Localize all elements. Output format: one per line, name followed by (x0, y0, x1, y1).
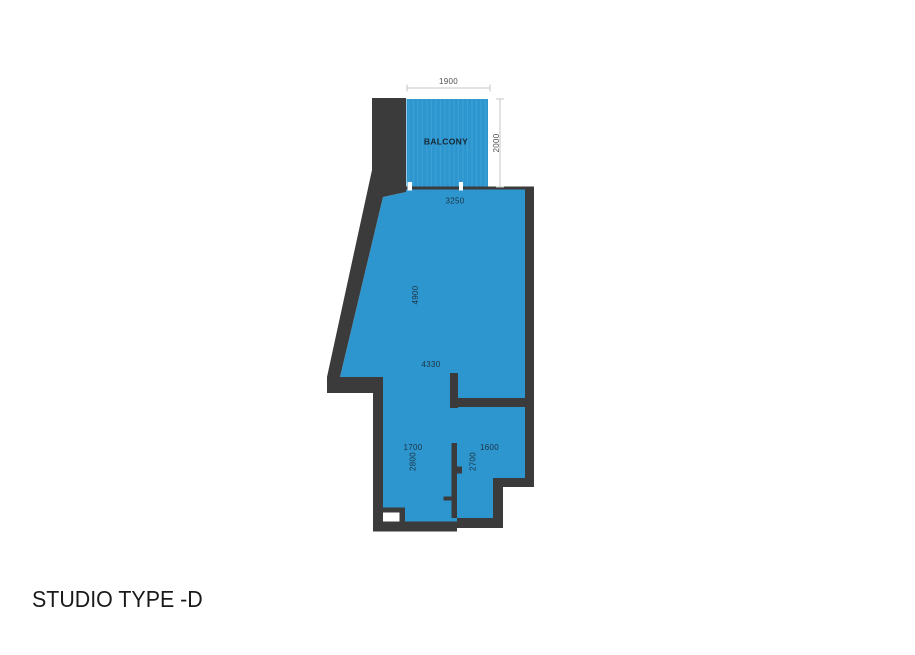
door-tick-right (459, 182, 463, 191)
floor-plan-svg: 1900 2000 BALCONY 3250 4900 4330 1700 28… (0, 0, 915, 655)
door-tick-left (408, 182, 413, 191)
dim-label-bed-width: 1700 (404, 443, 423, 452)
partition-stub-wall (450, 373, 458, 408)
floorplan-page: 1900 2000 BALCONY 3250 4900 4330 1700 28… (0, 0, 915, 655)
divider-tab-left (444, 497, 452, 501)
dim-label-balcony-depth: 2000 (492, 133, 501, 152)
divider-tab-right (457, 467, 462, 474)
dim-label-living-width: 4330 (422, 360, 441, 369)
room-divider-wall (452, 443, 458, 518)
dim-label-balcony-width: 1900 (439, 77, 458, 86)
dim-label-bath-width: 1600 (480, 443, 499, 452)
dim-label-living-length: 4900 (411, 285, 420, 304)
dim-label-bath-depth: 2700 (469, 452, 478, 471)
dim-label-entry-width: 3250 (446, 197, 465, 206)
dim-label-bed-depth: 2800 (409, 452, 418, 471)
niche-top-wall (382, 508, 406, 513)
bath-top-wall (457, 398, 525, 407)
niche-side-wall (400, 512, 406, 522)
balcony-label: BALCONY (424, 137, 468, 147)
page-title: STUDIO TYPE -D (32, 586, 203, 613)
niche-void (383, 513, 400, 522)
